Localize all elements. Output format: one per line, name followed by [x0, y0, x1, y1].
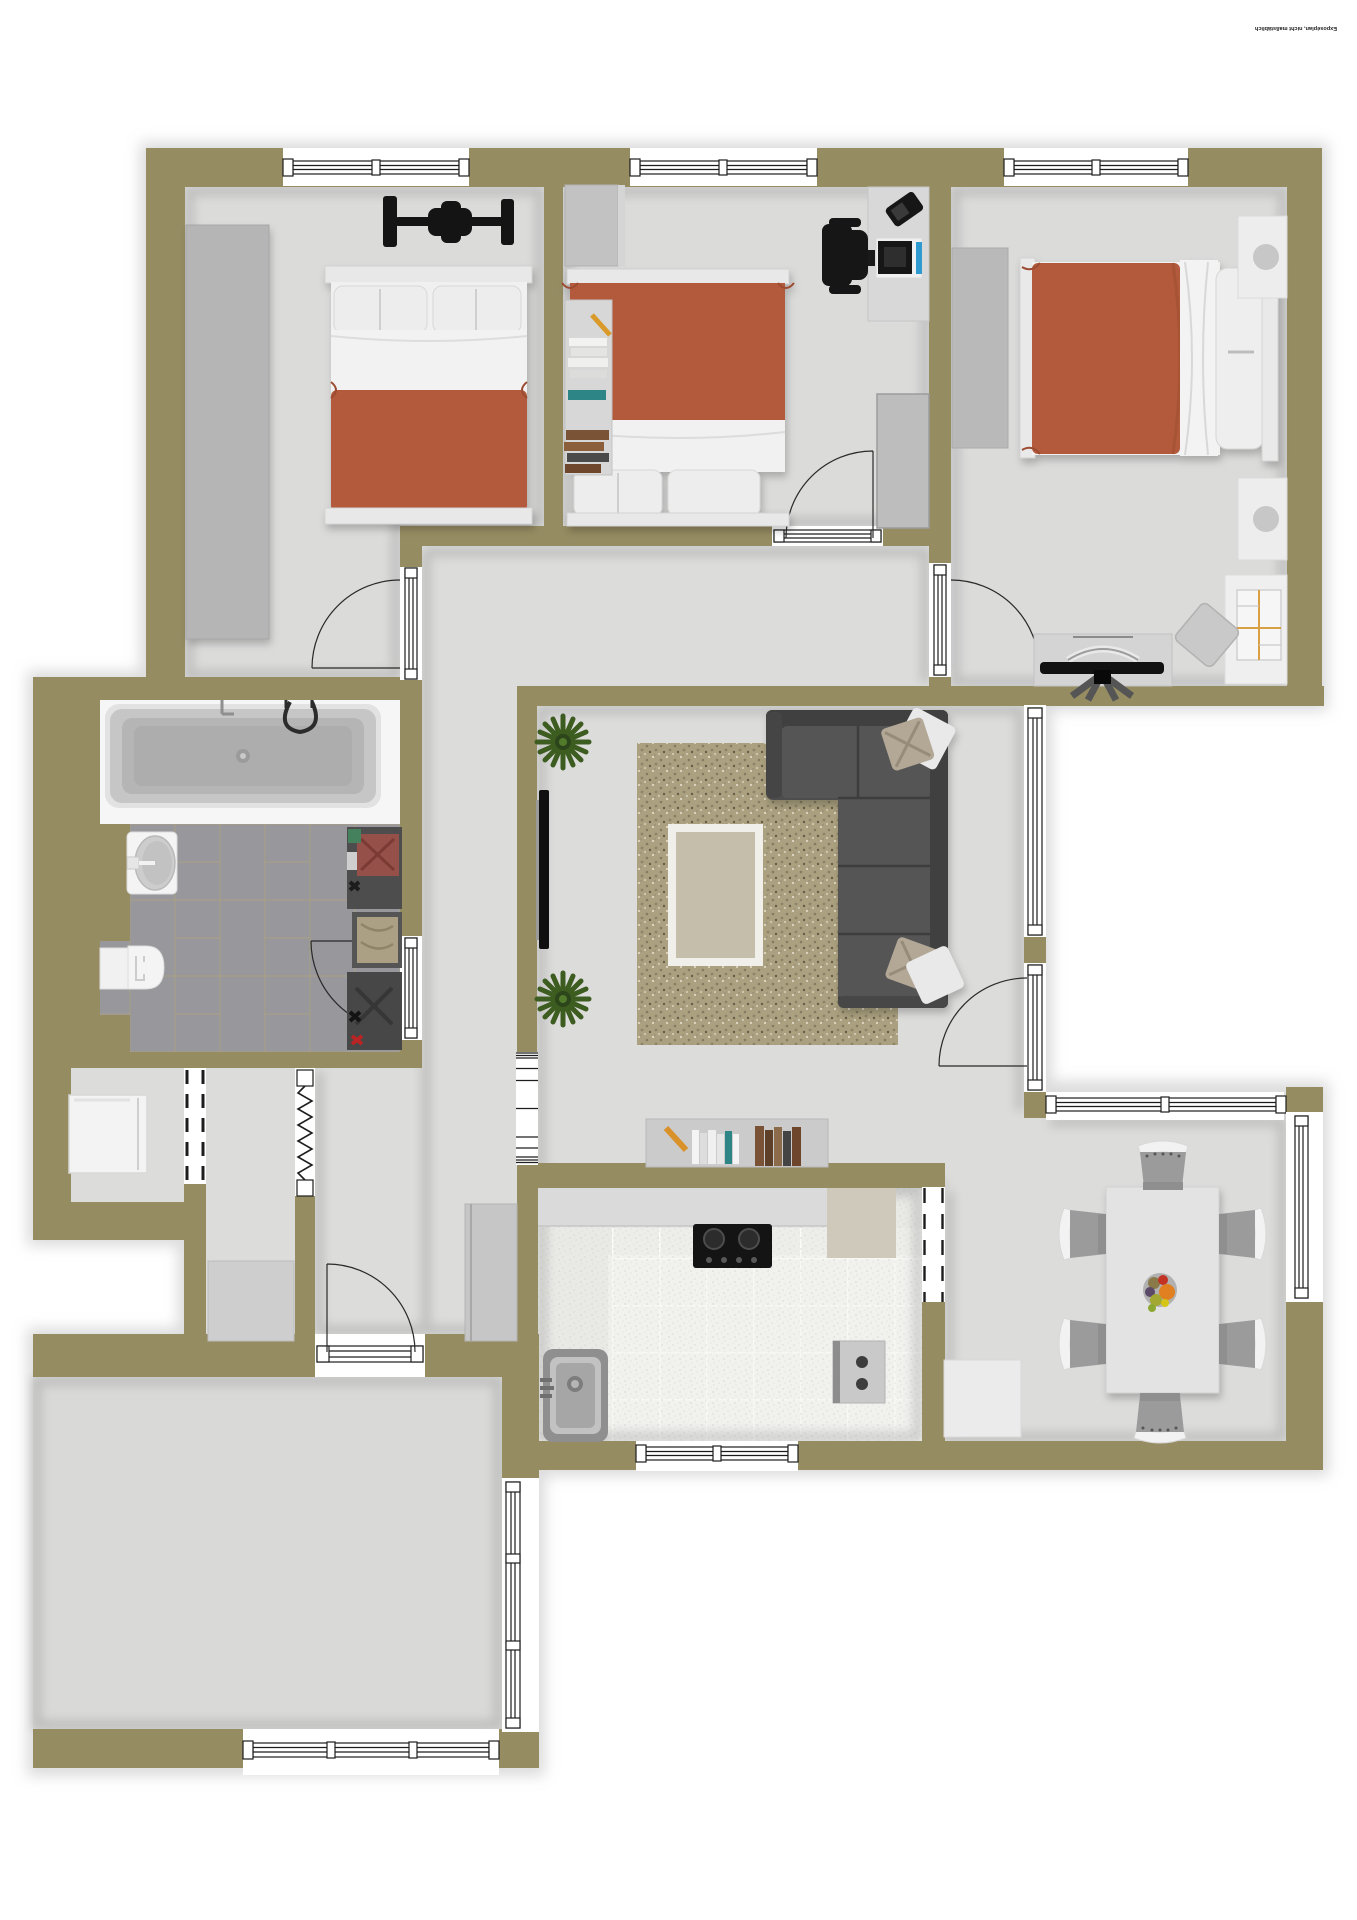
svg-text:Exposéplan, nicht maßstäblich: Exposéplan, nicht maßstäblich: [1254, 25, 1337, 31]
